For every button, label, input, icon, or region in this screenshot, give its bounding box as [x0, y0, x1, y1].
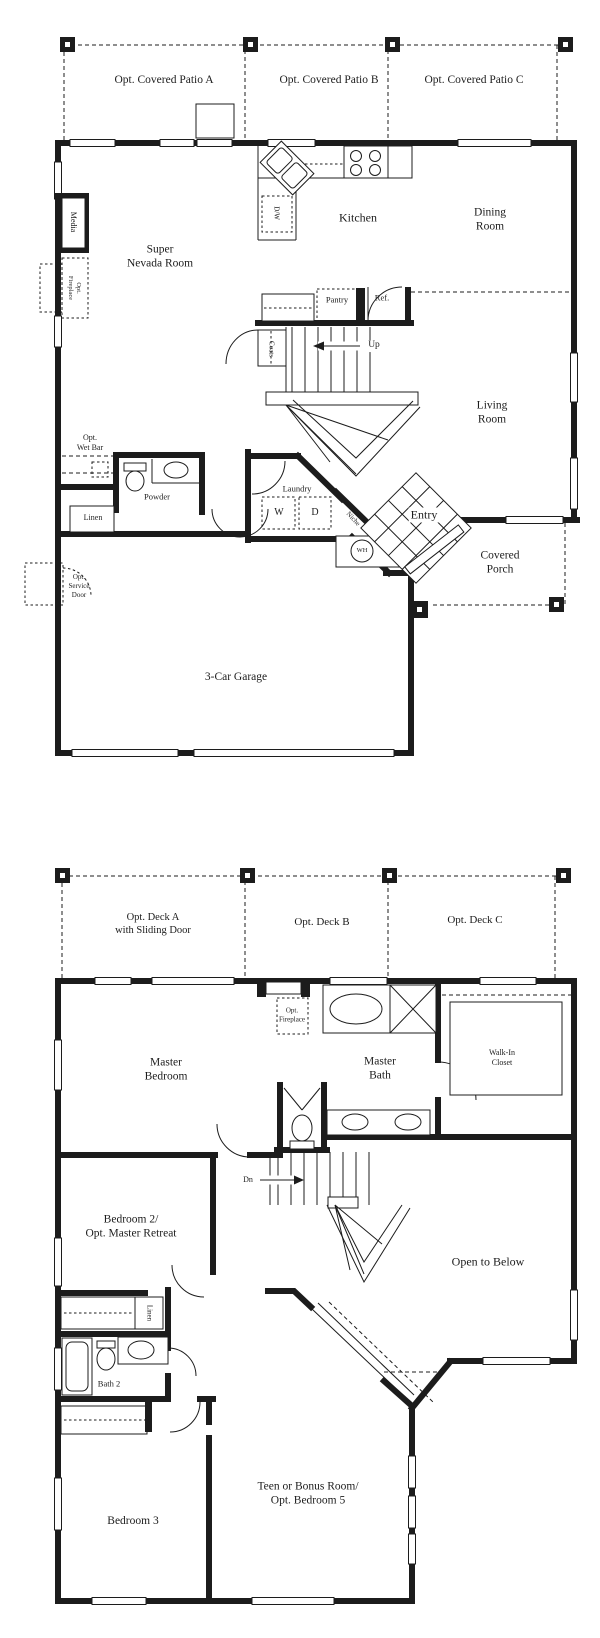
corner-sink — [260, 141, 314, 195]
bedroom3-door-arc — [170, 1402, 200, 1432]
label-kitchen: Kitchen — [339, 211, 377, 226]
label-line: Bath — [364, 1069, 396, 1083]
label-line: Service — [69, 582, 90, 591]
label-line: Master — [145, 1056, 188, 1070]
plan-linework — [0, 0, 600, 1638]
label-line: Wet Bar — [77, 443, 103, 453]
garage-door — [72, 750, 178, 757]
bedroom2-zone — [61, 1265, 204, 1329]
label-bath2: Bath 2 — [98, 1379, 120, 1390]
toilet-tank — [97, 1341, 115, 1348]
sliding-door — [152, 978, 234, 985]
laundry-door-arc — [252, 461, 285, 494]
label-media: Media — [68, 212, 78, 232]
toilet-tank — [124, 463, 146, 471]
label-living-room: Living Room — [477, 399, 508, 428]
bedroom3-zone — [61, 1402, 200, 1434]
floor1-drawing — [25, 37, 578, 757]
toilet-room-door — [284, 1088, 320, 1110]
label-opt-fireplace-1: Opt. Fireplace — [66, 276, 82, 300]
master-door-arc — [217, 1124, 250, 1157]
label-line: Teen or Bonus Room/ — [257, 1480, 358, 1494]
label-covered-porch: Covered Porch — [481, 549, 520, 578]
toilet-bowl — [97, 1348, 115, 1370]
label-line: Super — [127, 243, 193, 257]
label-master-bedroom: Master Bedroom — [145, 1056, 188, 1085]
bath2-fixtures — [62, 1337, 196, 1395]
sink — [128, 1341, 154, 1359]
toilet-bowl — [126, 471, 144, 491]
label-bedroom2: Bedroom 2/ Opt. Master Retreat — [85, 1213, 176, 1242]
label-deck-a: Opt. Deck A with Sliding Door — [115, 911, 191, 937]
label-line: Covered — [481, 549, 520, 563]
label-line: Nevada Room — [127, 257, 193, 271]
label-line: Opt. Master Retreat — [85, 1227, 176, 1241]
label-line: Opt. Bedroom 5 — [257, 1494, 358, 1508]
label-coats: Coats — [267, 341, 276, 357]
label-linen-2: Linen — [145, 1305, 154, 1321]
label-teen-bonus-room: Teen or Bonus Room/ Opt. Bedroom 5 — [257, 1480, 358, 1509]
bath2-door-arc — [168, 1348, 196, 1376]
label-dryer: D — [311, 507, 318, 520]
label-line: Fireplace — [279, 1015, 305, 1024]
label-deck-c: Opt. Deck C — [447, 914, 502, 928]
label-service-door: Opt. Service Door — [69, 573, 90, 599]
bedroom2-closet — [61, 1297, 135, 1329]
label-entry: Entry — [409, 508, 440, 523]
label-dining-room: Dining Room — [474, 206, 506, 235]
cooktop — [344, 146, 388, 178]
label-master-bath: Master Bath — [364, 1055, 396, 1084]
label-line: Opt. — [74, 276, 82, 300]
railing-corner — [268, 1291, 311, 1307]
coats-door-arc — [226, 330, 258, 364]
label-up: Up — [366, 340, 382, 352]
label-line: Closet — [489, 1058, 515, 1068]
patio-outline — [60, 37, 573, 140]
label-line: Fireplace — [66, 276, 74, 300]
label-washer: W — [274, 507, 283, 520]
label-line: Opt. — [77, 433, 103, 443]
label-line: Porch — [481, 563, 520, 577]
railing-end-corner — [384, 1381, 412, 1406]
sink — [342, 1114, 368, 1130]
label-linen-1: Linen — [84, 513, 103, 523]
label-line: Master — [364, 1055, 396, 1069]
floor-plan-page: Opt. Covered Patio A Opt. Covered Patio … — [0, 0, 600, 1638]
label-wet-bar: Opt. Wet Bar — [77, 433, 103, 453]
open-to-below-railing — [312, 1302, 438, 1402]
floor1-walls — [58, 143, 577, 753]
walk-in-closet — [442, 995, 571, 1095]
chimney — [196, 104, 234, 138]
bedroom2-door-arc — [172, 1265, 204, 1297]
label-opt-fireplace-2: Opt. Fireplace — [279, 1006, 305, 1024]
label-line: Bedroom — [145, 1070, 188, 1084]
opt-wet-bar — [62, 456, 113, 477]
label-line: with Sliding Door — [115, 924, 191, 937]
label-line: Opt. Deck A — [115, 911, 191, 924]
toilet-bowl — [292, 1115, 312, 1141]
label-bedroom3: Bedroom 3 — [107, 1514, 158, 1528]
sink — [395, 1114, 421, 1130]
label-line: Bedroom 2/ — [85, 1213, 176, 1227]
label-line: Dining — [474, 206, 506, 220]
label-dn: Dn — [241, 1175, 255, 1185]
label-dishwasher: D/W — [272, 206, 281, 220]
label-pantry: Pantry — [326, 295, 348, 306]
stair-rail — [328, 1197, 358, 1208]
label-super-nevada-room: Super Nevada Room — [127, 243, 193, 272]
garage-door — [194, 750, 394, 757]
label-line: Room — [477, 413, 508, 427]
label-line: Walk-In — [489, 1048, 515, 1058]
stair-landing-rail — [266, 392, 418, 405]
label-patio-a: Opt. Covered Patio A — [114, 73, 213, 87]
label-line: Door — [69, 590, 90, 599]
label-deck-b: Opt. Deck B — [294, 916, 349, 930]
label-powder: Powder — [144, 492, 170, 503]
label-garage: 3-Car Garage — [205, 670, 267, 684]
label-line: Room — [474, 220, 506, 234]
label-line: Opt. — [69, 573, 90, 582]
toilet-tank — [290, 1141, 314, 1149]
laundry-room — [252, 461, 331, 529]
label-water-heater: WH — [357, 547, 368, 555]
label-line: Living — [477, 399, 508, 413]
label-patio-b: Opt. Covered Patio B — [279, 73, 378, 87]
label-ref: Ref. — [375, 293, 389, 304]
label-walk-in-closet: Walk-In Closet — [489, 1048, 515, 1068]
sink — [164, 462, 188, 478]
label-laundry: Laundry — [283, 484, 312, 495]
kitchen-fixtures — [258, 141, 412, 240]
label-open-to-below: Open to Below — [452, 1255, 525, 1270]
label-line: Opt. — [279, 1006, 305, 1015]
label-patio-c: Opt. Covered Patio C — [424, 73, 523, 87]
